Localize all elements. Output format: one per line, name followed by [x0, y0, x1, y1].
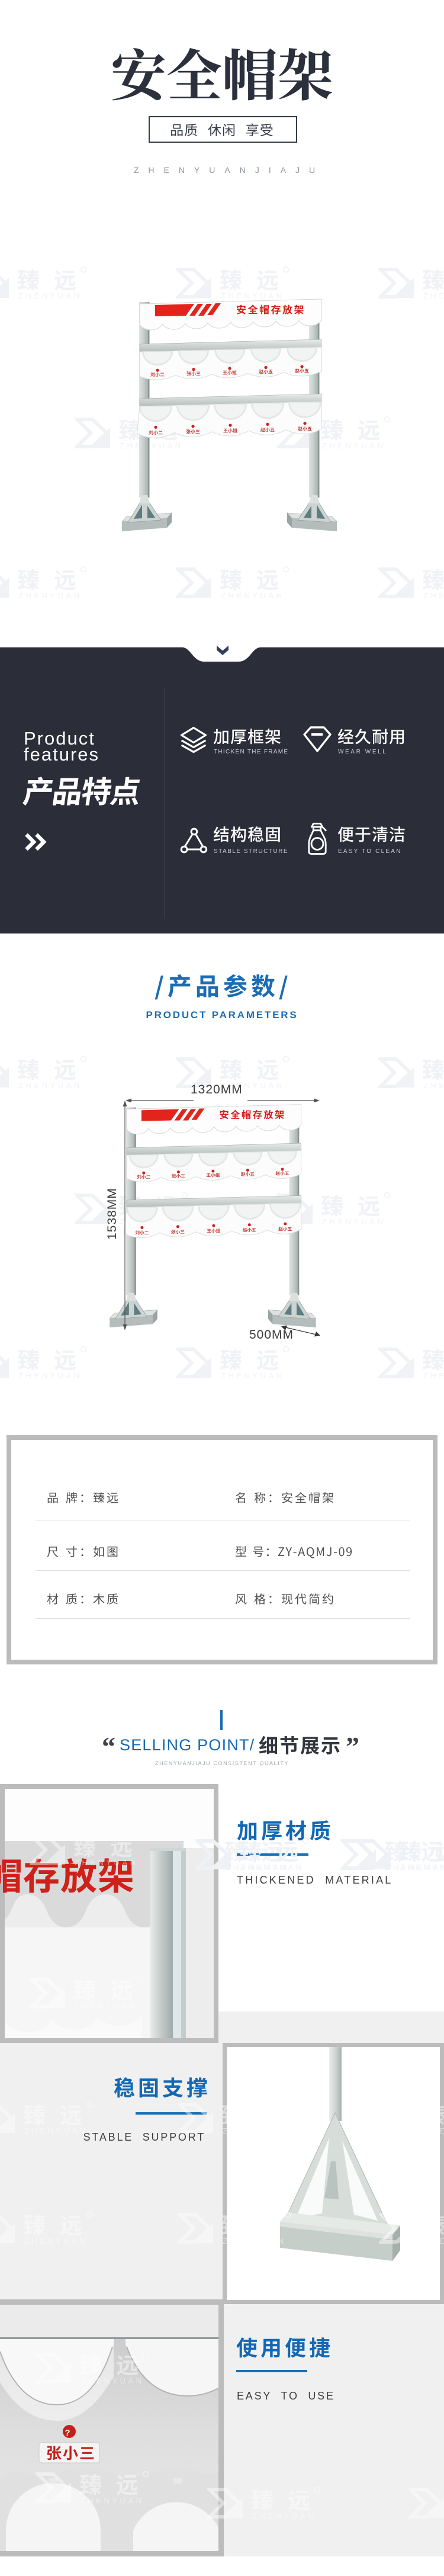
svg-text:?: ? — [65, 2428, 70, 2438]
